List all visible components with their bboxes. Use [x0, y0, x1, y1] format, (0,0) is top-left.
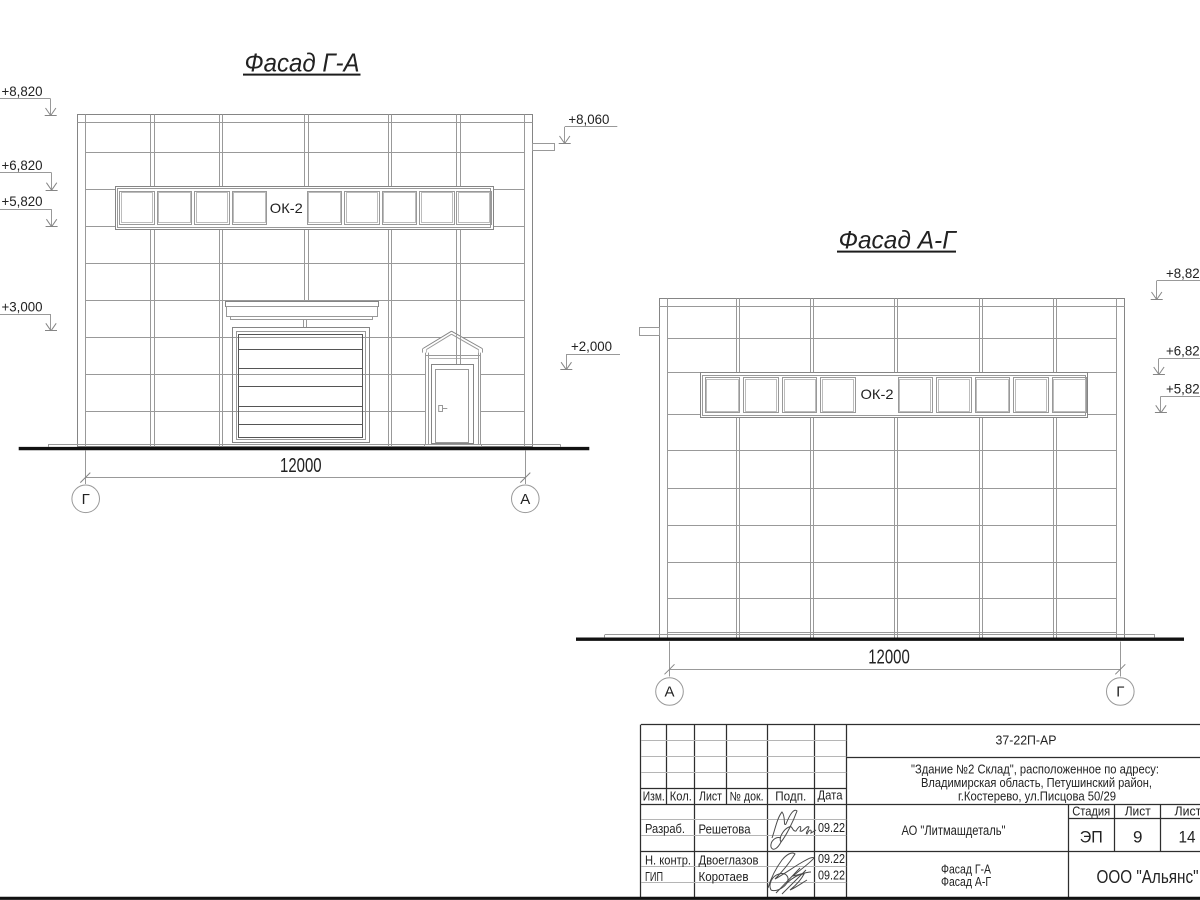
svg-text:Владимирская область, Петушинс: Владимирская область, Петушинский район,	[921, 776, 1152, 790]
svg-text:Изм.: Изм.	[643, 790, 665, 804]
svg-text:Стадия: Стадия	[1072, 805, 1110, 819]
svg-text:9: 9	[1133, 828, 1142, 847]
svg-text:Коротаев: Коротаев	[699, 870, 749, 884]
svg-text:14: 14	[1179, 828, 1196, 847]
svg-text:Листов: Листов	[1175, 805, 1200, 819]
svg-text:09.22: 09.22	[818, 852, 845, 866]
svg-text:Лист: Лист	[1125, 805, 1151, 819]
svg-text:12000: 12000	[868, 647, 910, 669]
svg-text:+3,000: +3,000	[2, 300, 43, 315]
svg-text:Двоеглазов: Двоеглазов	[699, 853, 759, 867]
svg-text:Г: Г	[82, 491, 90, 508]
svg-text:ЭП: ЭП	[1080, 828, 1103, 847]
svg-text:ГИП: ГИП	[645, 870, 663, 884]
svg-text:Г: Г	[1116, 684, 1124, 701]
svg-text:Разраб.: Разраб.	[645, 822, 685, 836]
svg-text:Подп.: Подп.	[775, 790, 806, 804]
svg-text:+2,000: +2,000	[571, 339, 612, 354]
svg-text:А: А	[664, 684, 674, 701]
svg-text:+8,060: +8,060	[568, 112, 609, 127]
svg-text:Фасад Г-А: Фасад Г-А	[245, 48, 360, 78]
svg-text:+6,820: +6,820	[2, 158, 43, 173]
svg-text:Решетова: Решетова	[699, 823, 751, 837]
svg-text:Кол.: Кол.	[670, 790, 692, 804]
svg-text:+5,820: +5,820	[2, 194, 43, 209]
svg-text:ОК-2: ОК-2	[861, 386, 894, 402]
svg-text:37-22П-АР: 37-22П-АР	[996, 733, 1057, 748]
svg-text:12000: 12000	[280, 455, 322, 477]
svg-text:А: А	[520, 491, 530, 508]
svg-text:ООО "Альянс": ООО "Альянс"	[1097, 867, 1199, 887]
svg-text:АО "Литмашдеталь": АО "Литмашдеталь"	[902, 823, 1006, 838]
svg-text:+6,820: +6,820	[1166, 344, 1200, 359]
svg-text:г.Костерево, ул.Писцова 50/29: г.Костерево, ул.Писцова 50/29	[958, 789, 1116, 803]
svg-text:Фасад А-Г: Фасад А-Г	[839, 227, 958, 255]
svg-text:09.22: 09.22	[818, 869, 845, 883]
svg-text:+8,820: +8,820	[2, 84, 43, 99]
svg-text:Н. контр.: Н. контр.	[645, 853, 691, 867]
svg-text:№ док.: № док.	[730, 790, 764, 804]
svg-text:+5,820: +5,820	[1166, 381, 1200, 396]
svg-text:09.22: 09.22	[818, 821, 845, 835]
svg-text:Дата: Дата	[818, 789, 843, 803]
svg-text:Фасад А-Г: Фасад А-Г	[941, 875, 991, 889]
svg-text:Лист: Лист	[699, 790, 722, 804]
svg-text:ОК-2: ОК-2	[270, 200, 303, 216]
svg-text:+8,820: +8,820	[1166, 266, 1200, 281]
svg-text:"Здание №2 Склад", расположенн: "Здание №2 Склад", расположенное по адре…	[911, 762, 1159, 776]
